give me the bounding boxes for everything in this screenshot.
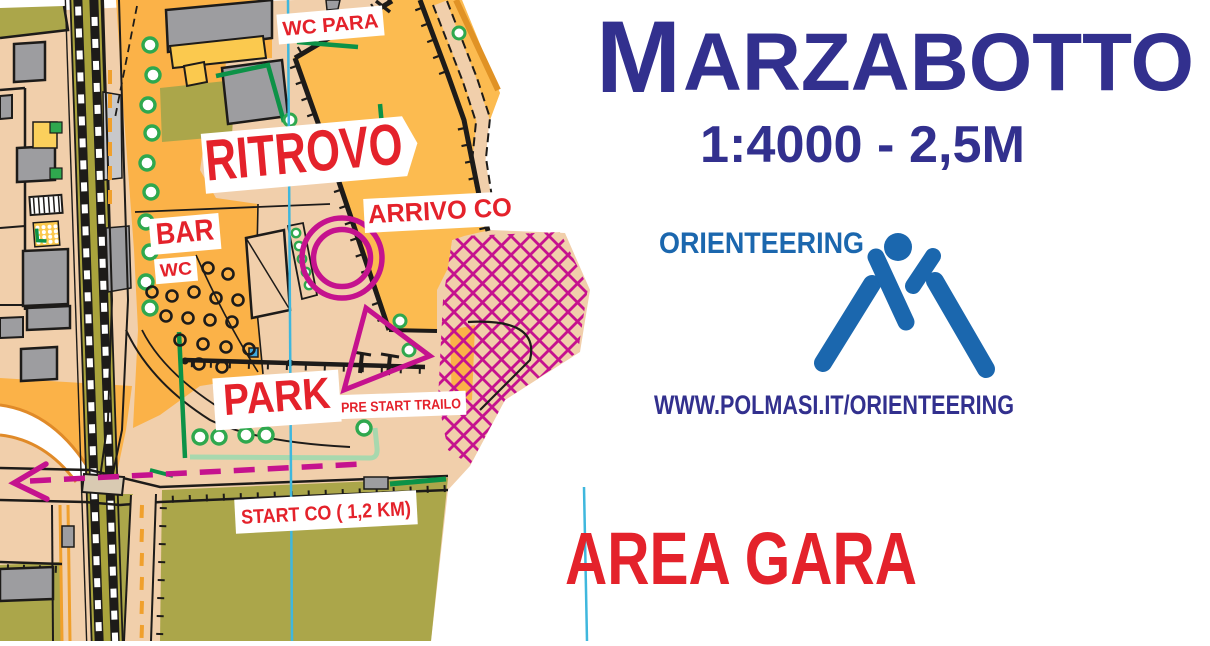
svg-text:PARK: PARK: [222, 369, 332, 425]
svg-text:WWW.POLMASI.IT/ORIENTEERING: WWW.POLMASI.IT/ORIENTEERING: [654, 390, 1014, 420]
svg-text:ORIENTEERING: ORIENTEERING: [659, 227, 864, 260]
svg-text:BAR: BAR: [155, 213, 216, 251]
svg-text:1:4000 - 2,5M: 1:4000 - 2,5M: [700, 116, 1025, 174]
svg-text:AREA GARA: AREA GARA: [565, 517, 917, 600]
svg-text:ARZABOTTO: ARZABOTTO: [683, 17, 1194, 108]
svg-text:M: M: [596, 0, 681, 114]
svg-text:WC: WC: [159, 258, 193, 281]
